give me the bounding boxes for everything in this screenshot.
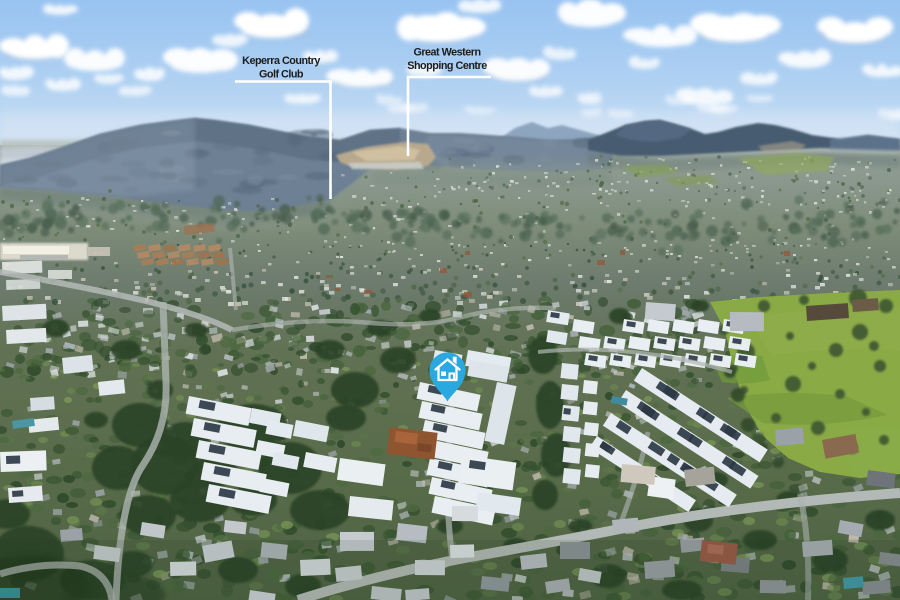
svg-text:Shopping Centre: Shopping Centre (407, 60, 487, 72)
svg-text:Great Western: Great Western (413, 47, 480, 59)
svg-text:Golf Club: Golf Club (259, 69, 304, 81)
svg-text:Keperra Country: Keperra Country (242, 55, 320, 67)
